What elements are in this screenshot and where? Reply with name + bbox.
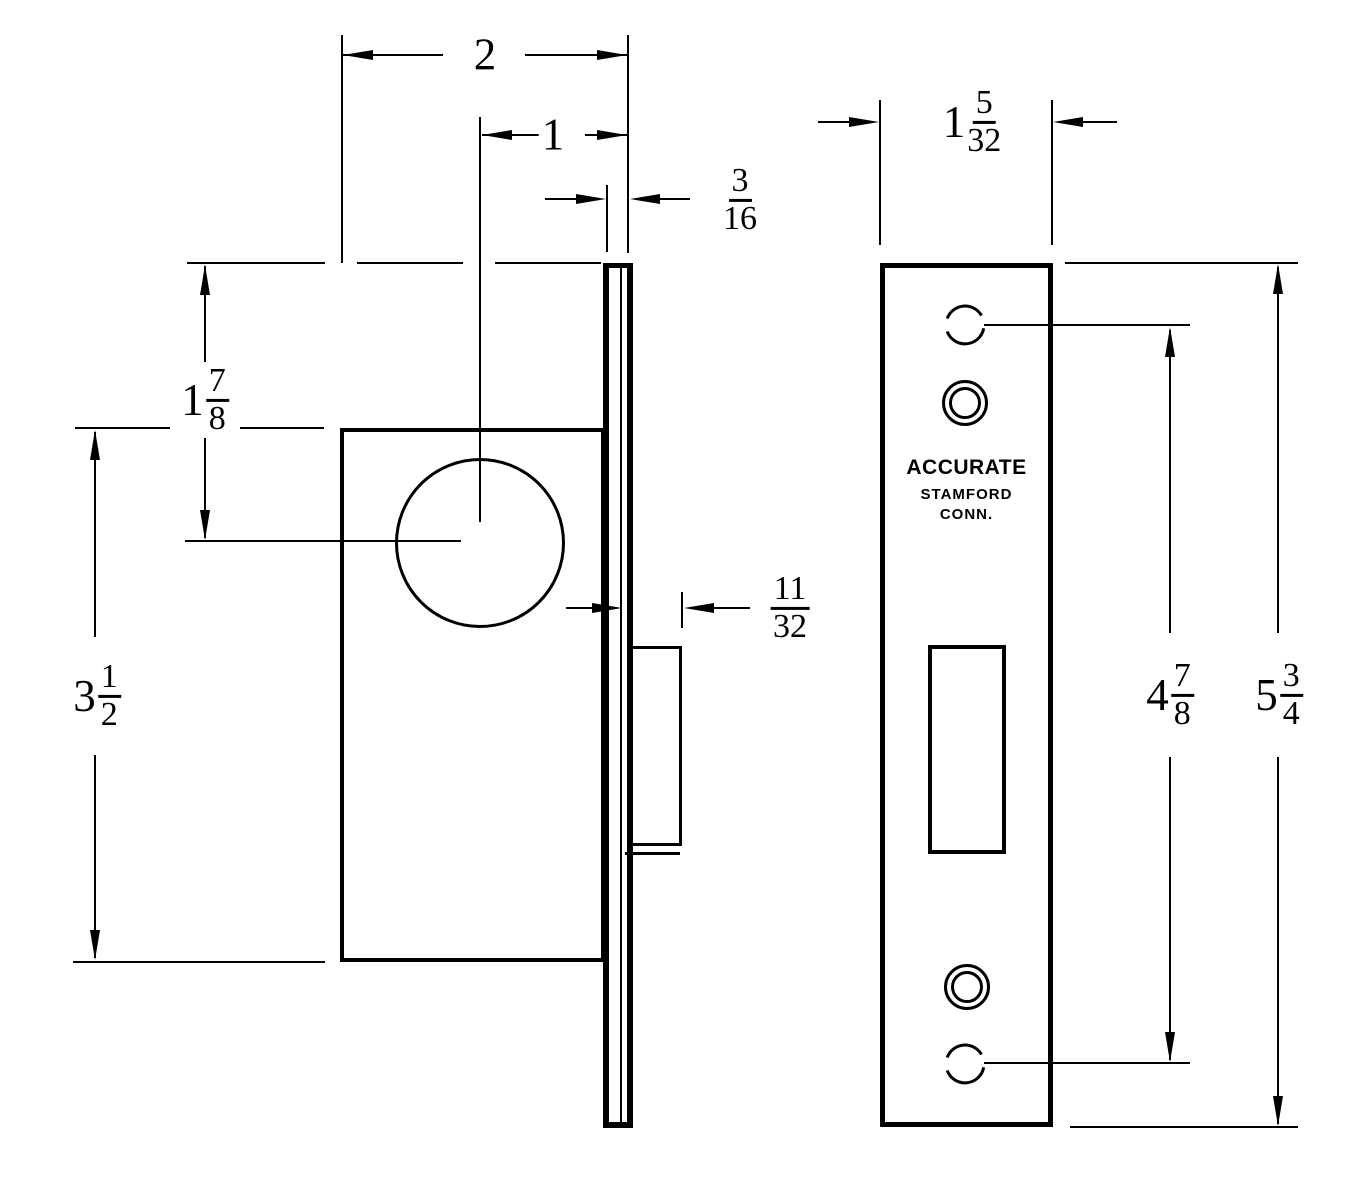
arrowhead-down — [1273, 1096, 1283, 1126]
extension-line — [495, 262, 601, 264]
extension-line — [479, 117, 481, 522]
faceplate-side-front-bar — [603, 266, 609, 1124]
dim-line — [1277, 267, 1279, 633]
arrowhead-up — [1165, 327, 1175, 357]
dim-label-top-to-hub: 1 7 8 — [178, 366, 232, 434]
extension-line — [627, 35, 629, 253]
arrowhead-left — [482, 130, 512, 140]
dim-line — [714, 607, 750, 609]
arrowhead-left — [1053, 117, 1083, 127]
center-leader-line — [185, 540, 461, 542]
dim-label-backset: 1 — [539, 113, 568, 158]
leader-line-bottom-screw — [984, 1062, 1190, 1064]
arrowhead-right — [597, 130, 627, 140]
bolt-opening-slot — [928, 645, 1006, 854]
faceplate-side-bottom-cap — [603, 1122, 633, 1128]
screw-hole-top — [943, 303, 987, 347]
extension-line — [240, 427, 324, 429]
arrowhead-left — [630, 194, 660, 204]
arrowhead-right — [597, 50, 627, 60]
extension-line — [357, 262, 463, 264]
cylinder-screw-ring-bottom — [944, 964, 990, 1010]
extension-line-bottom-right — [1070, 1126, 1298, 1128]
extension-tick — [606, 185, 608, 252]
extension-line-top-right — [1065, 262, 1298, 264]
extension-tick — [681, 592, 683, 628]
dim-line — [660, 198, 690, 200]
dim-label-case-height: 3 1 2 — [70, 662, 124, 730]
arrowhead-up — [200, 265, 210, 295]
mortise-lock-drawing: 2 1 3 16 — [0, 0, 1362, 1194]
extension-line — [73, 961, 325, 963]
extension-line — [187, 262, 325, 264]
faceplate-side-mid-line — [620, 264, 622, 1126]
brand-city: STAMFORD — [881, 486, 1052, 503]
bolt-side-view — [630, 646, 682, 846]
arrowhead-down — [1165, 1032, 1175, 1062]
dim-line — [545, 198, 579, 200]
dim-label-screw-spacing: 4 7 8 — [1143, 661, 1197, 729]
faceplate-side-top-cap — [603, 263, 633, 268]
arrowhead-left — [684, 603, 714, 613]
dim-label-front-height: 5 3 4 — [1252, 661, 1306, 729]
dim-label-bolt-projection: 11 32 — [766, 574, 813, 642]
dim-line — [94, 755, 96, 958]
arrowhead-right — [592, 603, 622, 613]
arrowhead-right — [576, 194, 606, 204]
cylinder-screw-ring-top — [942, 380, 988, 426]
extension-line — [879, 100, 881, 245]
arrowhead-right — [849, 117, 879, 127]
dim-label-front-thickness: 3 16 — [718, 166, 760, 234]
brand-name: ACCURATE — [881, 456, 1052, 480]
ring-inner-circle — [949, 387, 981, 419]
arrowhead-up — [1273, 264, 1283, 294]
arrowhead-up — [90, 430, 100, 460]
brand-stamp: ACCURATE STAMFORD CONN. — [881, 456, 1052, 523]
dim-label-front-width: 1 5 32 — [940, 88, 1005, 156]
arrowhead-down — [90, 930, 100, 960]
ring-inner-circle — [951, 971, 983, 1003]
bolt-bottom-flange-line — [625, 852, 680, 855]
dim-line — [1277, 757, 1279, 1124]
dim-line — [1169, 330, 1171, 633]
extension-line — [341, 35, 343, 263]
screw-hole-bottom — [943, 1042, 987, 1086]
extension-line — [75, 427, 170, 429]
dim-label-case-depth: 2 — [471, 33, 500, 78]
brand-state: CONN. — [881, 506, 1052, 523]
arrowhead-left — [343, 50, 373, 60]
dim-line — [1083, 121, 1117, 123]
dim-line — [94, 432, 96, 637]
dim-line — [818, 121, 852, 123]
arrowhead-down — [200, 510, 210, 540]
leader-line-top-screw — [984, 324, 1190, 326]
dim-line — [1169, 757, 1171, 1060]
